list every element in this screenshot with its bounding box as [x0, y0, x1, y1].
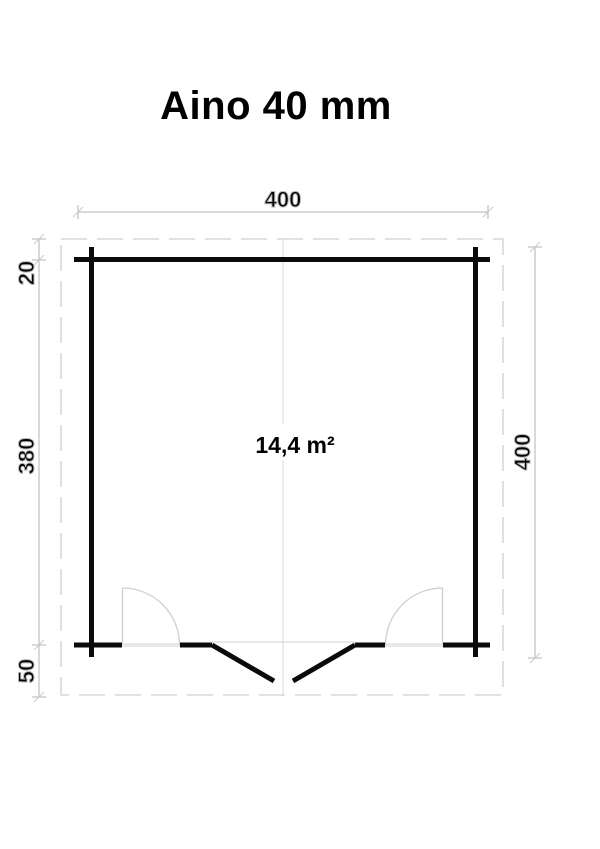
dimension-right: 400 [510, 242, 542, 663]
window-right [386, 588, 443, 645]
door-leaf-left [212, 645, 274, 681]
window-swing-arc-right [386, 588, 443, 645]
dimension-label-depth-right: 400 [510, 434, 535, 471]
drawing-page: Aino 40 mm 400 20 380 50 400 [0, 0, 600, 849]
plan-title: Aino 40 mm [160, 84, 392, 128]
walls [74, 247, 490, 681]
roof-overhang-outline [61, 239, 503, 695]
dimension-label-depth-left: 380 [14, 438, 39, 475]
dimension-label-width-top: 400 [265, 187, 302, 212]
dimension-left: 20 380 50 [14, 234, 46, 702]
dimension-top: 400 [73, 187, 493, 219]
dimension-label-rear-overhang: 20 [14, 261, 39, 285]
window-left [123, 588, 180, 645]
window-swing-arc-left [123, 588, 180, 645]
dimension-label-front-overhang: 50 [14, 659, 39, 683]
area-label: 14,4 m² [255, 432, 335, 458]
door-leaf-right [293, 645, 355, 681]
floor-plan-drawing: Aino 40 mm 400 20 380 50 400 [0, 0, 600, 849]
